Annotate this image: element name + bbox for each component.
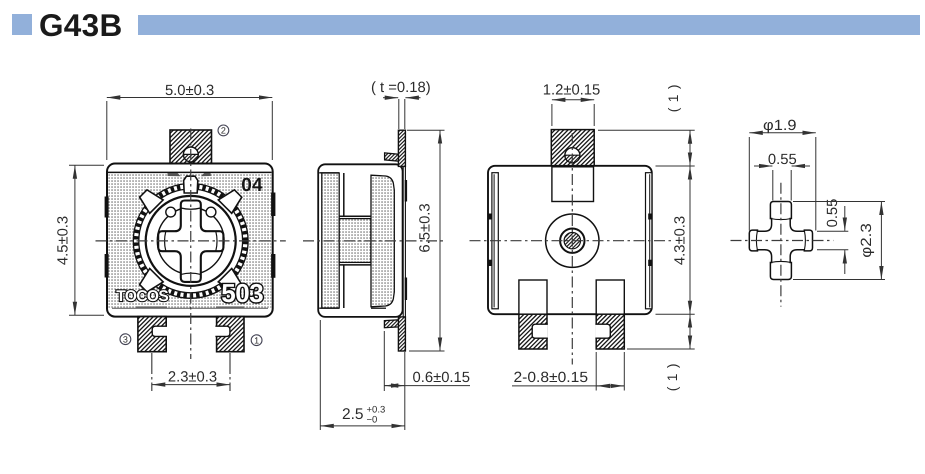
svg-text:6.5±0.3: 6.5±0.3 [418, 203, 434, 252]
svg-text:1: 1 [254, 335, 259, 345]
svg-text:2-0.8±0.15: 2-0.8±0.15 [514, 370, 589, 386]
svg-text:0.55: 0.55 [825, 199, 841, 228]
svg-text:1.2±0.15: 1.2±0.15 [543, 83, 601, 99]
svg-text:φ1.9: φ1.9 [763, 118, 797, 134]
svg-text:4.3±0.3: 4.3±0.3 [673, 216, 689, 265]
svg-text:04: 04 [241, 175, 263, 196]
svg-text:( 1 ): ( 1 ) [665, 363, 680, 392]
svg-text:2.3±0.3: 2.3±0.3 [168, 370, 217, 386]
svg-text:G43B: G43B [39, 7, 123, 43]
svg-text:3: 3 [123, 334, 128, 344]
svg-text:5.0±0.3: 5.0±0.3 [165, 83, 214, 99]
svg-text:2.5: 2.5 [342, 406, 364, 423]
svg-text:2: 2 [221, 126, 226, 136]
svg-text:φ2.3: φ2.3 [859, 223, 875, 258]
svg-text:4.5±0.3: 4.5±0.3 [56, 216, 72, 265]
svg-text:( 1 ): ( 1 ) [666, 84, 681, 113]
svg-text:TOCOS: TOCOS [116, 288, 168, 305]
svg-text:( t =0.18): ( t =0.18) [371, 80, 431, 96]
svg-text:503: 503 [221, 278, 263, 308]
svg-text:0.55: 0.55 [768, 152, 797, 168]
svg-text:0.6±0.15: 0.6±0.15 [413, 370, 471, 386]
svg-text:−0: −0 [367, 415, 378, 426]
